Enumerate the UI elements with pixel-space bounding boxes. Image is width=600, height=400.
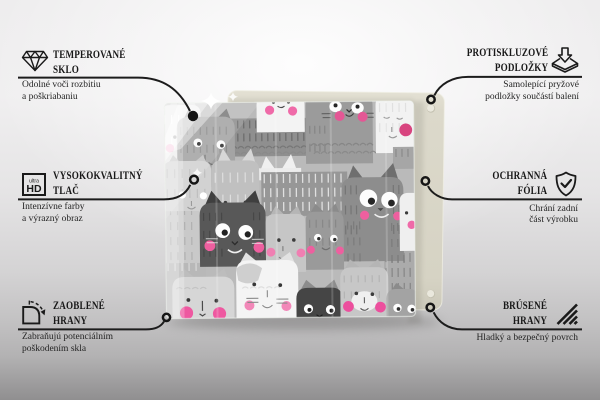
svg-text:HD: HD <box>26 183 42 195</box>
